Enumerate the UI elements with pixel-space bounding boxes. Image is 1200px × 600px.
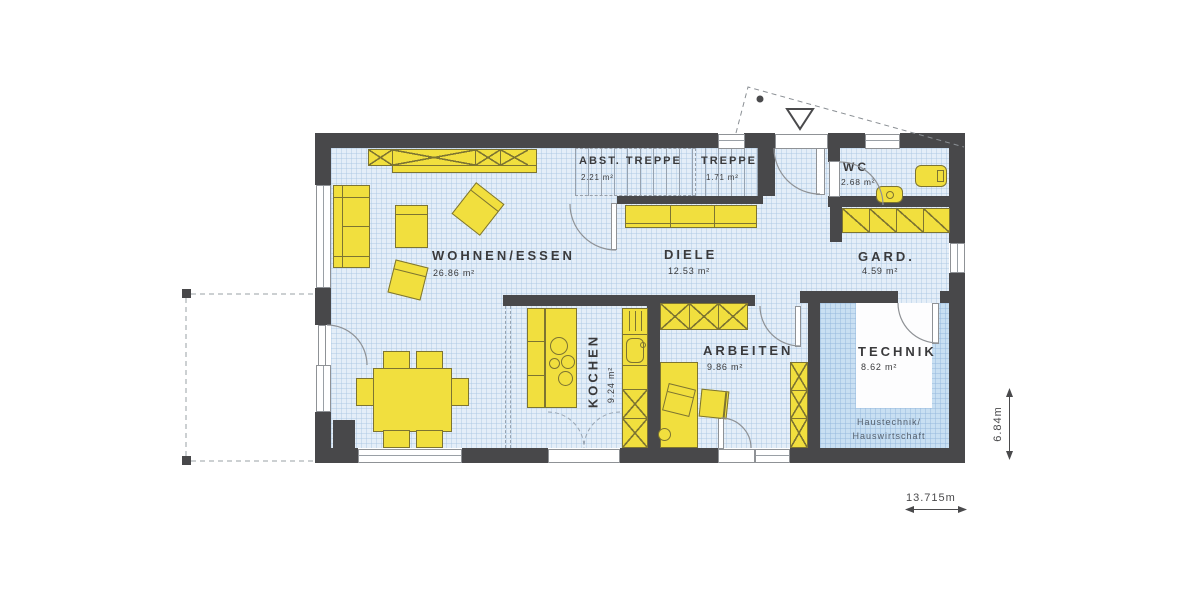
hall-sideboard [625, 205, 757, 228]
technik-note-line2: Hauswirtschaft [852, 431, 925, 441]
wc-door-leaf [829, 161, 840, 197]
wardrobe-section [843, 209, 870, 232]
basin-drain [886, 191, 894, 199]
dining-chair [416, 430, 443, 448]
dining-chair [451, 378, 469, 406]
sofa-armrest [334, 256, 369, 257]
dimension-width-label: 13.715m [906, 492, 956, 504]
cabinet-section [791, 363, 807, 391]
toilet-cistern [937, 170, 944, 182]
arbeiten-top-door-leaf [795, 306, 801, 347]
armchair [395, 205, 428, 248]
entrance-door-leaf [816, 148, 825, 195]
arrow-right-icon [958, 506, 967, 513]
cabinet-section [791, 419, 807, 447]
sofa-seat-divider [342, 226, 369, 227]
wall-bottom [620, 448, 718, 463]
room-label-treppe: TREPPE [701, 155, 757, 167]
wardrobe-section [870, 209, 897, 232]
window [718, 134, 745, 149]
counter-divider [623, 334, 647, 335]
dining-table [373, 368, 452, 432]
room-area-gard: 4.59 m² [862, 266, 898, 276]
room-divider-dashed [505, 306, 506, 448]
wardrobe-section [924, 209, 949, 232]
roof-point-marker [757, 96, 764, 103]
room-area-technik: 8.62 m² [861, 362, 897, 372]
cooktop-burner [550, 337, 568, 355]
room-divider-dashed [510, 306, 511, 448]
wardrobe [842, 208, 950, 233]
cooktop-burner [558, 371, 573, 386]
wall-gard-stub [830, 207, 842, 242]
diele-door-leaf [611, 203, 617, 250]
wall-stairs-right [758, 148, 775, 196]
wall-gard-technik [940, 291, 950, 303]
sofa-armrest [334, 197, 369, 198]
room-label-wc: WC [843, 160, 869, 174]
room-area-abst: 2.21 m² [581, 173, 614, 182]
shelf-section [690, 304, 719, 329]
sideboard-section [501, 150, 528, 165]
arbeiten-door-sill [718, 449, 755, 463]
room-label-technik: TECHNIK [858, 344, 937, 359]
wall-left [315, 288, 331, 325]
dining-chair [383, 430, 410, 448]
pouf-line [394, 268, 425, 277]
carport-post [182, 456, 191, 465]
arbeiten-door-leaf [718, 418, 724, 449]
wall-left [315, 133, 331, 185]
window [865, 134, 900, 149]
wall-top [828, 133, 865, 148]
window [358, 449, 462, 463]
island-divider [528, 341, 544, 342]
kitchen-door-sill [548, 449, 620, 463]
room-label-gard: GARD. [858, 249, 915, 264]
room-label-kochen: KOCHEN [586, 334, 601, 408]
counter-stripe [641, 311, 642, 331]
wall-arbeiten-door-stub [800, 291, 820, 303]
counter-stripe [629, 311, 630, 331]
armchair-backrest [396, 214, 427, 215]
wall-left [315, 412, 331, 463]
terrace-door-leaf [318, 325, 326, 366]
floor-lamp [658, 428, 671, 441]
wall-bottom [790, 448, 965, 463]
room-area-wc: 2.68 m² [841, 177, 875, 187]
cooktop-burner [549, 358, 560, 369]
monitor-line [668, 391, 693, 398]
kitchen-cooktop-counter [545, 308, 577, 408]
cabinet-section [791, 391, 807, 419]
wall-right [949, 273, 965, 463]
counter-stripe [635, 311, 636, 331]
room-label-wohnen: WOHNEN/ESSEN [432, 248, 575, 263]
wash-basin [876, 186, 903, 203]
floor-plan: WOHNEN/ESSEN 26.86 m² DIELE 12.53 m² ABS… [0, 0, 1200, 600]
sideboard-section [476, 150, 501, 165]
room-area-wohnen: 26.86 m² [433, 268, 475, 278]
shelf-section [719, 304, 747, 329]
wall-right [949, 133, 965, 243]
sofa [333, 185, 370, 268]
entrance-door-sill [775, 134, 828, 149]
window [316, 185, 331, 288]
arrow-left-icon [905, 506, 914, 513]
cooktop-burner [561, 355, 575, 369]
technik-note-line1: Haustechnik/ [857, 417, 921, 427]
wall-gard-technik [820, 291, 898, 303]
sideboard-section [393, 150, 476, 165]
kitchen-wall-counter [622, 308, 648, 448]
carport-post [182, 289, 191, 298]
wall-bottom [462, 448, 548, 463]
room-label-arbeiten: ARBEITEN [703, 343, 793, 358]
wall-corner-step [333, 420, 355, 448]
counter-cabinet [623, 389, 647, 418]
room-area-kochen: 9.24 m² [606, 367, 616, 403]
wall-top [744, 133, 775, 148]
shelf-section [661, 304, 690, 329]
dining-chair [356, 378, 374, 406]
sideboard-shelf-line [626, 223, 756, 224]
counter-cabinet [623, 418, 647, 447]
arrow-down-icon [1006, 451, 1013, 460]
sideboard [368, 149, 537, 166]
wall-under-stairs [617, 196, 763, 204]
window [316, 365, 331, 412]
office-shelf [660, 303, 748, 330]
wall-kochen-arbeiten [647, 306, 660, 448]
sink-faucet [640, 342, 646, 348]
entrance-marker-icon [787, 109, 813, 129]
sideboard-section [369, 150, 393, 165]
wardrobe-section [897, 209, 924, 232]
room-area-treppe: 1.71 m² [706, 173, 739, 182]
kitchen-island [527, 308, 545, 408]
island-divider [528, 375, 544, 376]
dining-chair [416, 351, 443, 369]
office-cabinet [790, 362, 808, 448]
toilet [915, 165, 947, 187]
room-label-diele: DIELE [664, 247, 717, 262]
counter-divider [623, 365, 647, 366]
dimension-depth-label: 6.84m [992, 406, 1004, 442]
wall-technik-left [808, 303, 820, 448]
room-area-diele: 12.53 m² [668, 266, 710, 276]
window [950, 243, 965, 273]
sideboard-shelf [392, 165, 537, 173]
room-area-arbeiten: 9.86 m² [707, 362, 743, 372]
wall-wc-stub [828, 148, 840, 162]
wall-top [315, 133, 718, 148]
technik-door-leaf [932, 303, 939, 344]
chair-backrest [723, 392, 728, 418]
desk-chair [699, 389, 730, 420]
room-label-abst: ABST. TREPPE [579, 155, 682, 167]
dining-chair [383, 351, 410, 369]
arrow-up-icon [1006, 388, 1013, 397]
window [755, 449, 790, 463]
